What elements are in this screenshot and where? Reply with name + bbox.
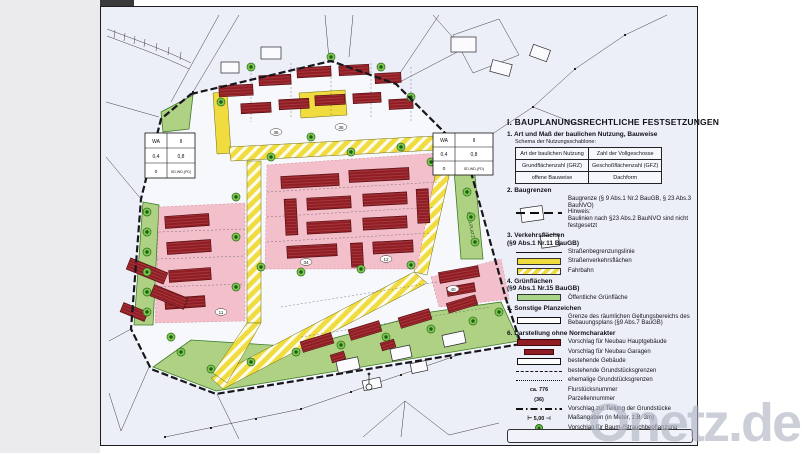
legend-symbol: [515, 317, 563, 324]
svg-text:II: II: [473, 138, 476, 144]
svg-text:0,4: 0,4: [153, 154, 160, 160]
watermark: Onetz.de: [588, 392, 800, 454]
legend-thinline-icon: [516, 252, 562, 253]
table-cell: Dachform: [589, 172, 662, 184]
tree-icon: [397, 143, 405, 151]
svg-text:o: o: [443, 166, 446, 172]
legend-item: bestehende Gebäude: [515, 358, 697, 366]
legend-section-heading: 6. Darstellung ohne Normcharakter: [507, 330, 697, 337]
proposed-building: [307, 220, 352, 234]
legend-item-label: Straßenverkehrsflächen: [568, 258, 632, 265]
tree-icon: [143, 208, 151, 216]
tree-icon: [357, 265, 365, 273]
nutzungsschablone-legend-table: Art der baulichen NutzungZahl der Vollge…: [515, 147, 662, 184]
nutzungsschablone-right: WAII 0,40,8 oSD,WD,(FD): [433, 133, 493, 175]
existing-building: [221, 62, 239, 73]
legend-section-heading: 2. Baugrenzen: [507, 187, 697, 194]
legend-dotted-icon: [516, 380, 562, 381]
table-cell: Geschoßflächenzahl (GFZ): [589, 160, 662, 172]
legend-section: 1. Art und Maß der baulichen Nutzung, Ba…: [505, 131, 697, 184]
proposed-building: [363, 192, 408, 206]
proposed-building: [307, 196, 352, 210]
legend-item-label: Öffentliche Grünfläche: [568, 295, 628, 302]
legend-item-label: Grenze des räumlichen Geltungsbereichs d…: [568, 314, 697, 327]
tree-icon: [143, 228, 151, 236]
proposed-building: [241, 102, 271, 114]
legend-dashed-icon: [516, 371, 562, 372]
legend-item: bestehende Grundstücksgrenzen: [515, 367, 697, 375]
legend-symbol: [515, 294, 563, 301]
existing-building: [261, 47, 281, 59]
legend-item: Baugrenze (§ 9 Abs.1 Nr.2 BauGB, § 23 Ab…: [515, 196, 697, 230]
legend-item-label: Baugrenze (§ 9 Abs.1 Nr.2 BauGB, § 23 Ab…: [568, 196, 697, 230]
legend-item: Straßenbegrenzungslinie: [515, 248, 697, 256]
tree-icon: [232, 233, 240, 241]
legend-symbol: [515, 212, 563, 214]
svg-text:0,8: 0,8: [178, 154, 185, 160]
legend-striped-icon: [517, 268, 561, 275]
legend-section: 3. Verkehrsflächen (§9 Abs.1 Nr.11 BauGB…: [505, 232, 697, 275]
tree-icon: [292, 348, 300, 356]
svg-text:II: II: [180, 139, 183, 145]
tree-icon: [327, 53, 335, 61]
tree-icon: [167, 333, 175, 341]
tree-icon: [467, 213, 475, 221]
tree-icon: [427, 325, 435, 333]
legend-redbox-sm-icon: [524, 349, 554, 355]
svg-text:WA: WA: [152, 139, 161, 145]
legend-measure-icon: ⊢ 5,00 ⊣: [527, 416, 550, 422]
tree-icon: [257, 263, 265, 271]
table-row: offene BauweiseDachform: [516, 172, 662, 184]
legend-symbol: ⊢ 5,00 ⊣: [515, 416, 563, 422]
svg-text:0,8: 0,8: [471, 152, 478, 158]
tree-icon: [207, 365, 215, 373]
legend-section-heading: 5. Sonstige Planzeichen: [507, 305, 697, 312]
tree-icon: [247, 358, 255, 366]
legend-symbol: [515, 349, 563, 355]
legend-item-label: bestehende Gebäude: [568, 358, 626, 365]
legend-green-icon: [517, 294, 561, 301]
tree-icon: [143, 268, 151, 276]
svg-text:0,4: 0,4: [441, 152, 448, 158]
proposed-building: [284, 199, 298, 236]
legend-item-label: Straßenbegrenzungslinie: [568, 249, 635, 256]
legend-item-label: bestehende Grundstücksgrenzen: [568, 368, 656, 375]
legend-whitebox-icon: [517, 317, 561, 324]
legend-item: Vorschlag für Neubau Hauptgebäude: [515, 339, 697, 347]
legend-item-label: Vorschlag für Neubau Garagen: [568, 349, 651, 356]
legend-symbol: [515, 380, 563, 381]
svg-text:40: 40: [450, 287, 456, 292]
legend-item-label: ehemalige Grundstücksgrenzen: [568, 377, 653, 384]
legend-item: ehemalige Grundstücksgrenzen: [515, 377, 697, 385]
table-row: Grundflächenzahl (GRZ)Geschoßflächenzahl…: [516, 160, 662, 172]
proposed-building: [353, 92, 381, 103]
legend-symbol: [515, 268, 563, 275]
tree-icon: [347, 148, 355, 156]
legend-symbol: [515, 371, 563, 372]
tree-icon: [407, 261, 415, 269]
legend-section-subheading: Schema der Nutzungsschablone:: [515, 139, 697, 145]
svg-text:WA: WA: [440, 138, 449, 144]
tree-icon: [232, 283, 240, 291]
legend-section: 4. Grünflächen (§9 Abs.1 Nr.15 BauGB)Öff…: [505, 278, 697, 302]
legend-symbol: [515, 258, 563, 265]
legend-redbox-icon: [517, 339, 561, 346]
legend-item-label: Fahrbahn: [568, 268, 594, 275]
legend-symbol: [515, 339, 563, 346]
legend-baugrenze-icon: [516, 212, 562, 214]
legend-section-heading: 3. Verkehrsflächen (§9 Abs.1 Nr.11 BauGB…: [507, 232, 697, 246]
table-cell: Grundflächenzahl (GRZ): [516, 160, 589, 172]
tree-icon: [232, 193, 240, 201]
tree-icon: [463, 188, 471, 196]
legend-symbol: [515, 252, 563, 253]
legend-item: Öffentliche Grünfläche: [515, 294, 697, 302]
existing-building: [490, 60, 512, 77]
legend-symbol: ca. 776: [515, 387, 563, 393]
legend-parz-icon: (36): [534, 397, 544, 403]
existing-building: [529, 44, 550, 61]
tree-icon: [247, 63, 255, 71]
tree-icon: [471, 238, 479, 246]
existing-building: [451, 37, 476, 52]
existing-building: [410, 360, 428, 373]
legend-yellow-icon: [517, 258, 561, 265]
svg-text:SD,WD,(FD): SD,WD,(FD): [464, 167, 484, 171]
legend-item: Straßenverkehrsflächen: [515, 258, 697, 266]
table-cell: offene Bauweise: [516, 172, 589, 184]
legend-item: Grenze des räumlichen Geltungsbereichs d…: [515, 314, 697, 327]
page: { "watermark": { "text": "Onetz.de" }, "…: [0, 0, 805, 453]
legend-item: Fahrbahn: [515, 267, 697, 275]
tree-icon: [495, 308, 503, 316]
svg-text:35: 35: [338, 125, 344, 130]
tree-icon: [307, 133, 315, 141]
tree-icon: [143, 288, 151, 296]
tree-icon: [177, 348, 185, 356]
svg-text:36: 36: [273, 130, 279, 135]
legend-symbol: [515, 358, 563, 365]
proposed-building: [315, 94, 345, 106]
tree-icon: [217, 98, 225, 106]
table-cell: Art der baulichen Nutzung: [516, 148, 589, 160]
tree-icon: [337, 341, 345, 349]
legend-section-heading: 1. Art und Maß der baulichen Nutzung, Ba…: [507, 131, 697, 138]
legend-item-label: Vorschlag für Neubau Hauptgebäude: [568, 339, 667, 346]
tree-icon: [382, 333, 390, 341]
existing-building: [362, 377, 382, 391]
proposed-building: [169, 268, 212, 283]
legend-section-heading: 4. Grünflächen (§9 Abs.1 Nr.15 BauGB): [507, 278, 697, 292]
proposed-building: [279, 98, 309, 110]
proposed-building: [339, 64, 369, 76]
svg-text:SD,WD,(FD): SD,WD,(FD): [171, 170, 191, 174]
tree-icon: [377, 63, 385, 71]
svg-text:11: 11: [219, 310, 224, 315]
legend-item: Vorschlag für Neubau Garagen: [515, 348, 697, 356]
legend-dashdot-icon: [516, 408, 562, 409]
legend-symbol: [515, 408, 563, 409]
tree-icon: [469, 317, 477, 325]
nutzungsschablone-left: WAII 0,40,8 oSD,WD,(FD): [145, 133, 195, 178]
proposed-building: [287, 244, 338, 259]
page-margin-left: [0, 0, 100, 453]
svg-text:34: 34: [303, 260, 309, 265]
proposed-building: [373, 240, 414, 254]
plan-sheet: SPIELPLATZ: [100, 6, 698, 446]
tree-icon: [143, 248, 151, 256]
table-cell: Zahl der Vollgeschosse: [589, 148, 662, 160]
legend-whitebox-icon: [517, 358, 561, 365]
proposed-building: [416, 189, 430, 224]
tree-icon: [143, 308, 151, 316]
legend-symbol: (36): [515, 397, 563, 403]
legend-flur-icon: ca. 776: [530, 387, 548, 393]
legend-section: 5. Sonstige PlanzeichenGrenze des räumli…: [505, 305, 697, 327]
proposed-building: [363, 216, 408, 230]
legend-title: I. BAUPLANUNGSRECHTLICHE FESTSETZUNGEN: [507, 117, 697, 127]
table-row: Art der baulichen NutzungZahl der Vollge…: [516, 148, 662, 160]
legend-section: 2. BaugrenzenBaugrenze (§ 9 Abs.1 Nr.2 B…: [505, 187, 697, 229]
svg-text:o: o: [155, 169, 158, 175]
proposed-building: [350, 243, 363, 268]
tree-icon: [267, 153, 275, 161]
svg-text:12: 12: [383, 257, 389, 262]
tree-icon: [297, 268, 305, 276]
